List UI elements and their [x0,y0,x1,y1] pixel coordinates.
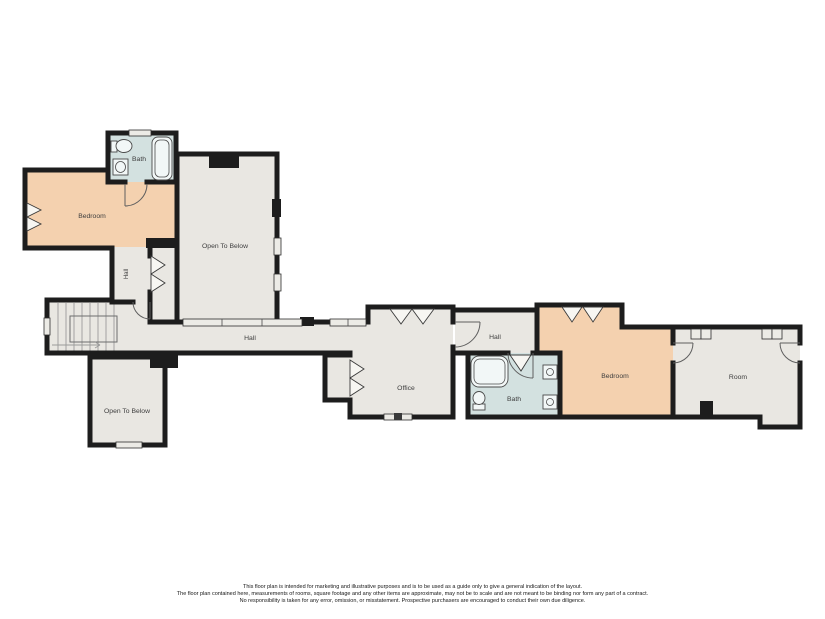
room-open-to-below-main [177,154,277,322]
window-icon [691,329,701,339]
room-label-office: Office [397,385,415,392]
floor-plan-canvas: Bath Bedroom Open To Below Hall Hall Ope… [0,0,825,619]
bathtub-icon [471,356,508,387]
room-open-to-below-lower [90,357,165,445]
floor-areas [25,133,800,445]
sink-icon [113,159,128,175]
wall-block [272,199,281,217]
room-label-open-to-below-main: Open To Below [202,243,248,250]
window-band-icon [183,319,302,326]
office-closet-nook [325,355,350,400]
disclaimer-line-3: No responsibility is taken for any error… [0,598,825,605]
disclaimer-line-2: The floor plan contained here, measureme… [0,591,825,598]
room-label-bath-upper: Bath [132,156,146,163]
window-icon [44,318,50,335]
toilet-icon [111,140,132,153]
floor-plan: Bath Bedroom Open To Below Hall Hall Ope… [0,0,825,619]
wall-block [150,353,178,368]
window-icon [701,329,711,339]
window-vent-icon [394,413,402,420]
disclaimer: This floor plan is intended for marketin… [0,584,825,606]
window-icon [129,130,151,136]
sink-icon [543,365,557,379]
room-label-bedroom-upper: Bedroom [78,213,106,220]
room-label-hall-small: Hall [124,269,130,279]
window-icon [762,329,772,339]
room-label-bedroom-east: Bedroom [601,373,629,380]
sink-icon [543,395,557,409]
window-band-icon [330,319,366,326]
room-label-bath-lower: Bath [507,396,521,403]
window-icon [772,329,782,339]
bathtub-icon [152,137,172,180]
window-icon [274,238,281,255]
wall-block [146,238,177,248]
toilet-icon [473,392,485,411]
window-icon [274,274,281,291]
chimney-block [209,152,239,168]
room-label-hall-main: Hall [244,335,256,342]
room-label-open-to-below-lower: Open To Below [104,408,150,415]
room-label-room-east: Room [729,374,747,381]
room-hall-east [455,310,537,353]
room-label-hall-east: Hall [489,334,501,341]
disclaimer-line-1: This floor plan is intended for marketin… [0,584,825,591]
window-icon [116,442,142,448]
chimney-block [700,401,713,417]
room-hall-small [112,247,150,302]
